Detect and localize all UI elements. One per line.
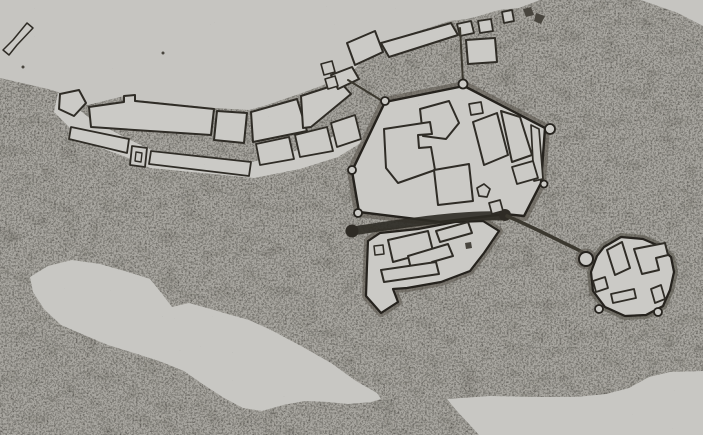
paper-grain-overlay	[0, 0, 703, 435]
historic-map-figure	[0, 0, 703, 435]
map-canvas	[0, 0, 703, 435]
